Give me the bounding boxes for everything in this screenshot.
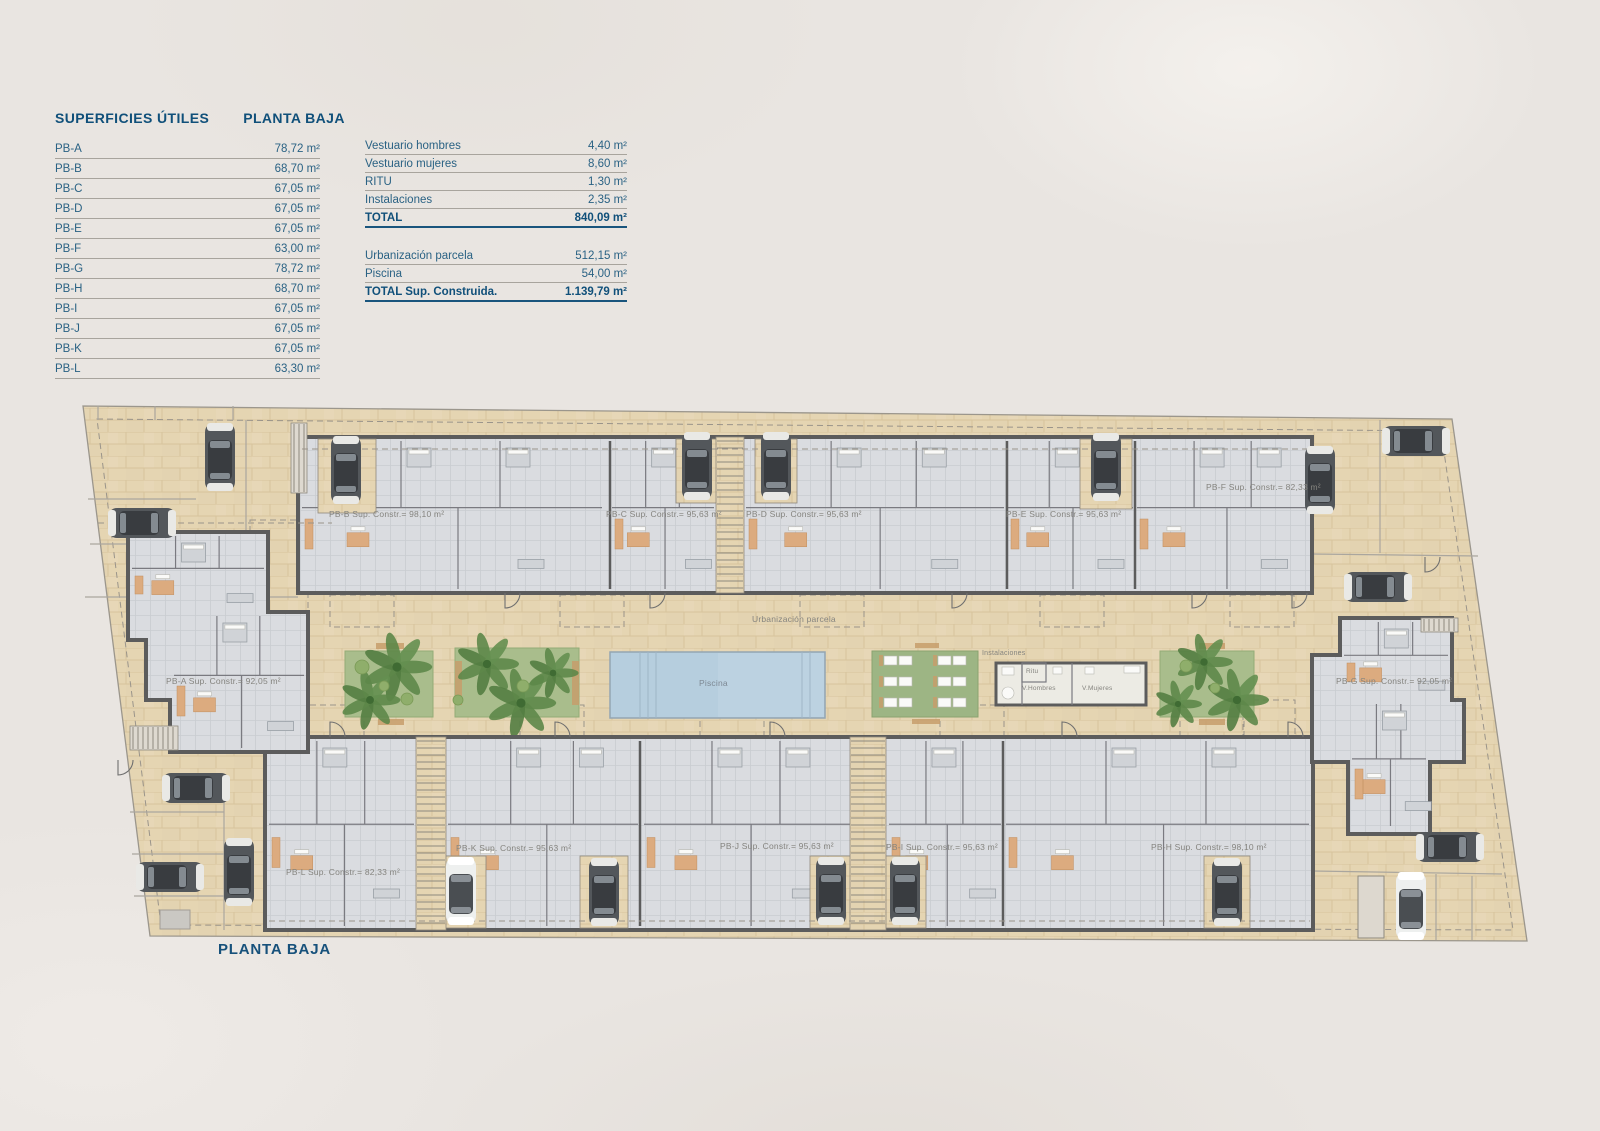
sofa	[932, 559, 958, 568]
car-icon	[162, 773, 230, 803]
car-icon	[205, 423, 235, 491]
sofa	[268, 722, 294, 731]
label-piscina: Piscina	[699, 678, 728, 688]
sofa	[1098, 559, 1124, 568]
sofa	[227, 594, 253, 603]
table	[627, 533, 649, 547]
furniture-accent	[615, 519, 623, 549]
sunbed	[953, 677, 966, 686]
utility-box	[160, 910, 190, 929]
planter-rack	[1358, 876, 1384, 938]
car-icon	[1396, 872, 1426, 940]
label-v-hombres: V.Hombres	[1022, 685, 1056, 692]
unit-label-pb-i: PB-I Sup. Constr.= 95,63 m²	[886, 842, 998, 852]
sofa	[685, 559, 711, 568]
car-icon	[816, 857, 846, 925]
unit-label-pb-k: PB-K Sup. Constr.= 95,63 m²	[456, 843, 571, 853]
unit-label-pb-h: PB-H Sup. Constr.= 98,10 m²	[1151, 842, 1267, 852]
car-icon	[1091, 433, 1121, 501]
sofa	[970, 889, 996, 898]
car-icon	[136, 862, 204, 892]
bush-icon	[1210, 683, 1220, 693]
car-icon	[890, 857, 920, 925]
unit-label-pb-b: PB-B Sup. Constr.= 98,10 m²	[329, 509, 444, 519]
unit-label-pb-f: PB-F Sup. Constr.= 82,33 m²	[1206, 482, 1321, 492]
sunbed	[953, 656, 966, 665]
sunbed	[938, 698, 951, 707]
sunbed	[938, 677, 951, 686]
unit-label-pb-j: PB-J Sup. Constr.= 95,63 m²	[720, 841, 834, 851]
sofa	[373, 889, 399, 898]
table	[1163, 533, 1185, 547]
car-icon	[682, 432, 712, 500]
furniture-accent	[1011, 519, 1019, 549]
sunbed	[899, 656, 912, 665]
car-icon	[1344, 572, 1412, 602]
car-icon	[589, 858, 619, 926]
sofa	[1405, 802, 1431, 811]
label-instalaciones: Instalaciones	[982, 650, 1025, 657]
plan-sheet: SUPERFICIES ÚTILES PLANTA BAJA PB-A78,72…	[0, 0, 1600, 1131]
stair-shaft	[850, 737, 886, 930]
unit-label-pb-e: PB-E Sup. Constr.= 95,63 m²	[1006, 509, 1121, 519]
sunbed	[884, 698, 897, 707]
car-icon	[1212, 858, 1242, 926]
bush-icon	[517, 680, 529, 692]
bush-icon	[355, 660, 369, 674]
furniture-accent	[177, 686, 185, 716]
table	[1051, 856, 1073, 870]
furniture-accent	[272, 838, 280, 868]
car-icon	[224, 838, 254, 906]
sunbed	[884, 677, 897, 686]
unit-label-pb-a: PB-A Sup. Constr.= 92,05 m²	[166, 676, 281, 686]
stair-shaft	[416, 737, 446, 930]
table	[785, 533, 807, 547]
car-icon	[1382, 426, 1450, 456]
car-icon	[1305, 446, 1335, 514]
furniture-accent	[749, 519, 757, 549]
unit-label-pb-l: PB-L Sup. Constr.= 82,33 m²	[286, 867, 400, 877]
sunbed	[953, 698, 966, 707]
bush-icon	[1180, 660, 1192, 672]
car-icon	[446, 857, 476, 925]
label-ritu: Ritu	[1026, 668, 1038, 675]
table	[675, 856, 697, 870]
label-v-mujeres: V.Mujeres	[1082, 685, 1112, 692]
furniture-accent	[135, 576, 143, 594]
car-icon	[761, 432, 791, 500]
plan-caption: PLANTA BAJA	[218, 941, 331, 958]
bush-icon	[379, 681, 389, 691]
facilities-block	[996, 663, 1146, 705]
label-urbanizacion-parcela: Urbanización parcela	[752, 614, 836, 624]
bush-icon	[401, 693, 413, 705]
sunbed	[899, 698, 912, 707]
table	[347, 533, 369, 547]
table	[194, 698, 216, 712]
unit-label-pb-d: PB-D Sup. Constr.= 95,63 m²	[746, 509, 862, 519]
unit-label-pb-c: PB-C Sup. Constr.= 95,63 m²	[606, 509, 722, 519]
floor-plan	[0, 0, 1600, 1131]
car-icon	[1416, 832, 1484, 862]
table	[1363, 780, 1385, 794]
furniture-accent	[1140, 519, 1148, 549]
bush-icon	[453, 695, 463, 705]
table	[152, 581, 174, 595]
table	[1027, 533, 1049, 547]
sofa	[518, 559, 544, 568]
unit-label-pb-g: PB-G Sup. Constr.= 92,05 m²	[1336, 676, 1452, 686]
car-icon	[108, 508, 176, 538]
exterior-stair	[130, 726, 178, 750]
furniture-accent	[647, 838, 655, 868]
furniture-accent	[1009, 838, 1017, 868]
furniture-accent	[1355, 769, 1363, 799]
car-icon	[331, 436, 361, 504]
sunbed	[884, 656, 897, 665]
sofa	[1262, 559, 1288, 568]
sunbed	[938, 656, 951, 665]
sunbed	[899, 677, 912, 686]
